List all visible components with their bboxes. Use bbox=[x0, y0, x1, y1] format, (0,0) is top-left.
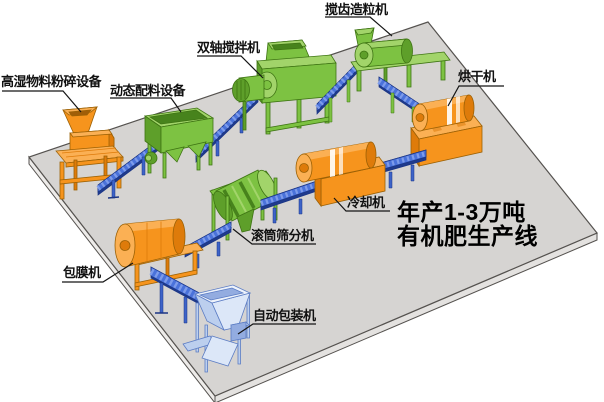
title-line2: 有机肥生产线 bbox=[397, 224, 538, 248]
label-cooler: 冷却机 bbox=[347, 196, 385, 210]
label-batcher: 动态配料设备 bbox=[110, 84, 185, 98]
production-line-title: 年产1-3万吨 有机肥生产线 bbox=[397, 200, 538, 248]
label-packer: 自动包装机 bbox=[253, 309, 316, 323]
label-screener: 滚筒筛分机 bbox=[251, 229, 314, 243]
label-crusher: 高湿物料粉碎设备 bbox=[1, 75, 101, 89]
label-mixer: 双轴搅拌机 bbox=[197, 41, 260, 55]
label-coater: 包膜机 bbox=[63, 266, 101, 280]
label-dryer: 烘干机 bbox=[458, 70, 496, 84]
fertilizer-production-line-diagram: 高湿物料粉碎设备 动态配料设备 双轴搅拌机 搅齿造粒机 烘干机 冷却机 滚筒筛分… bbox=[0, 0, 604, 402]
title-line1: 年产1-3万吨 bbox=[397, 200, 538, 224]
label-granulator: 搅齿造粒机 bbox=[325, 3, 388, 17]
